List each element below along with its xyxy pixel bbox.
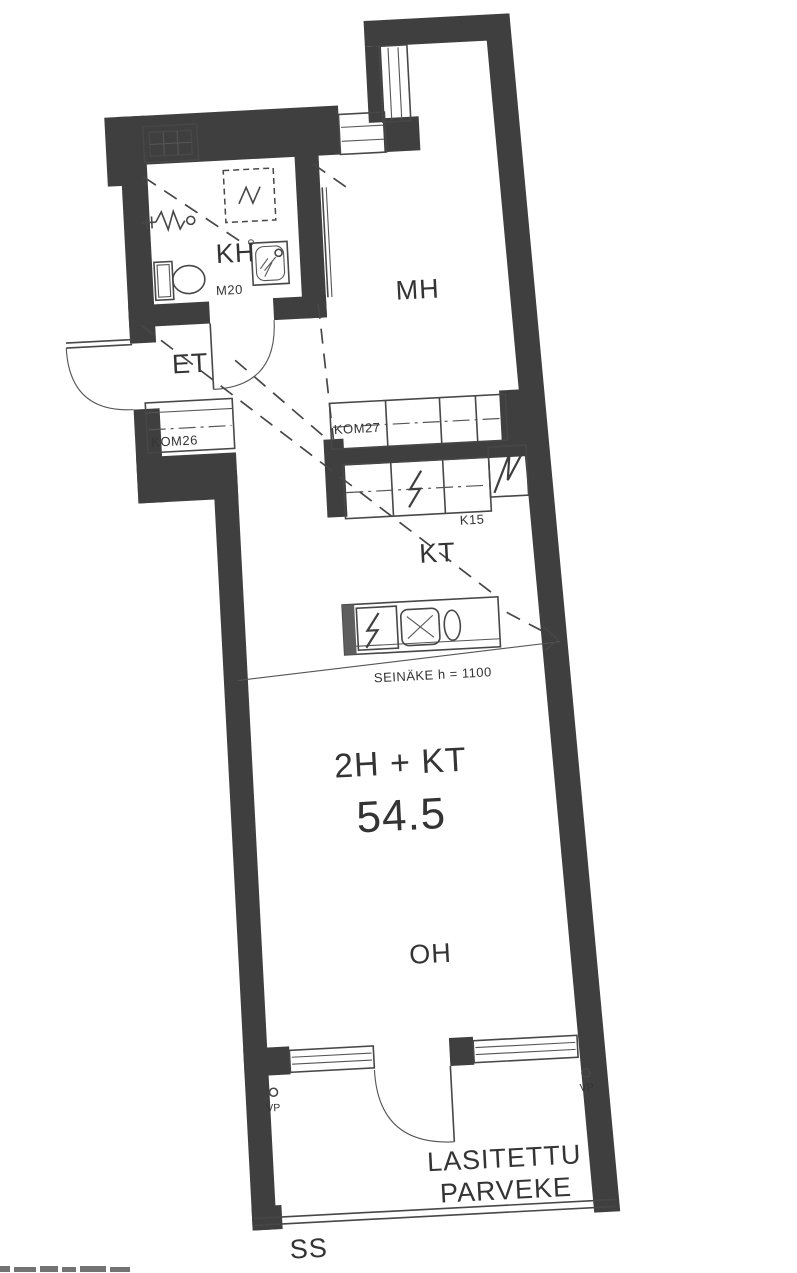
- wall-segment: [449, 1037, 474, 1066]
- floor-plan-drawing: KH M20 MH ET KOM26 KOM27 K15 KT SEINÄKE …: [0, 0, 797, 1273]
- vp-label-right: VP: [579, 1081, 594, 1094]
- layout-label: 2H + KT: [333, 741, 467, 786]
- code-label-k15: K15: [459, 511, 484, 527]
- room-label-living: OH: [408, 938, 452, 970]
- room-label-hallway: ET: [171, 348, 209, 380]
- area-label: 54.5: [355, 789, 447, 843]
- wall-segment: [243, 1046, 290, 1076]
- ss-label: SS: [289, 1233, 329, 1265]
- room-label-bathroom: KH: [215, 237, 256, 269]
- floor-plan-page: KH M20 MH ET KOM26 KOM27 K15 KT SEINÄKE …: [0, 0, 797, 1273]
- code-label-kom27: KOM27: [334, 420, 381, 437]
- wall-segment: [128, 302, 210, 328]
- vp-label-left: VP: [266, 1102, 281, 1115]
- code-label-kom26: KOM26: [151, 432, 198, 449]
- code-label-m20: M20: [216, 282, 244, 298]
- wall-segment: [499, 389, 528, 446]
- room-label-kitchen: KT: [418, 537, 456, 569]
- room-label-bedroom: MH: [395, 273, 441, 305]
